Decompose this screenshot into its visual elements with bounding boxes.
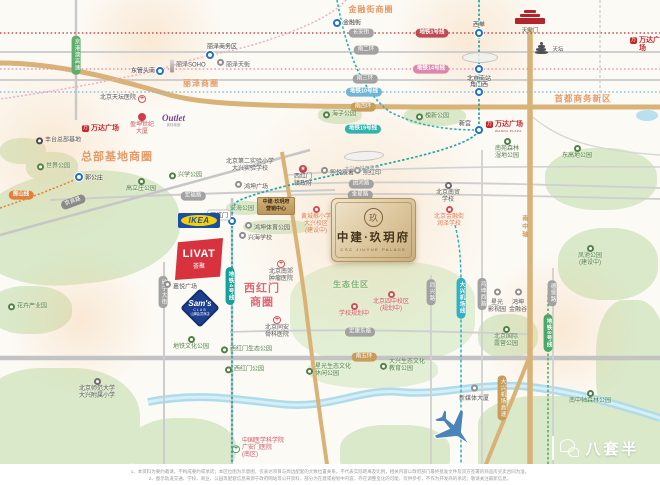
poi-icon bbox=[470, 385, 477, 392]
metro-line-badge: 地铁4号线 bbox=[226, 267, 235, 305]
wanda-entext: WANDA PLAZA bbox=[495, 129, 523, 133]
map-canvas: 天安门 天坛 金融街商圈丽泽商圈总部基地商圈首都商务新区西红门 商圈生态住区长安… bbox=[0, 0, 660, 485]
poi-label: 东高地公园 bbox=[562, 153, 592, 160]
park-icon bbox=[169, 173, 176, 180]
poi-label: 北京天坛医院 bbox=[100, 95, 136, 102]
poi-icon bbox=[321, 167, 328, 174]
poi-label: 鸿坤体育公园 bbox=[254, 225, 290, 232]
metro-station-marker bbox=[156, 67, 164, 75]
station-label: 角门西 bbox=[470, 80, 488, 89]
labels-layer: 金融街商圈丽泽商圈总部基地商圈首都商务新区西红门 商圈生态住区长安街南二环南三环… bbox=[0, 0, 660, 485]
district-label: 丽泽商圈 bbox=[183, 79, 219, 89]
wanda-icon: 万 bbox=[630, 37, 637, 44]
map-poi: 学校规划中 bbox=[339, 303, 369, 318]
park-icon bbox=[225, 367, 232, 374]
poi-label: 南中轴森林公园 bbox=[569, 398, 611, 405]
map-poi: 海子公园 bbox=[323, 111, 356, 118]
metro-line-badge: 地铁1号线 bbox=[415, 29, 448, 38]
poi-label: 地铁文化公园 bbox=[173, 344, 209, 351]
pin-icon bbox=[138, 113, 146, 121]
station-label: 西单 bbox=[473, 20, 485, 29]
metro-station-marker bbox=[475, 126, 483, 134]
road-badge: 宏康东路 bbox=[345, 328, 375, 337]
map-poi: 黄城根小学 大兴校区 (建设中) bbox=[301, 206, 331, 236]
project-seal-icon: 玖 bbox=[364, 208, 383, 227]
map-poi: 大兴大悦春风里 bbox=[344, 166, 379, 172]
metro-station-marker bbox=[75, 173, 83, 181]
road-badge: 南中轴 bbox=[518, 212, 528, 242]
metro-station-marker bbox=[475, 29, 483, 37]
livat-logo: LIVAT荟聚 bbox=[175, 238, 223, 280]
road-badge: 大兴机场高速 bbox=[498, 376, 507, 421]
watermark-text: 八套半 bbox=[586, 438, 640, 459]
road-badge: 长安街 bbox=[349, 29, 374, 38]
watermark-divider bbox=[552, 436, 554, 460]
metro-line-badge: 房山线 bbox=[9, 191, 34, 200]
wanda-text: 万达广场 bbox=[495, 121, 523, 129]
park-icon bbox=[502, 326, 509, 333]
map-poi: 南中轴森林公园 bbox=[569, 390, 611, 405]
road-badge: 团河路 bbox=[349, 180, 374, 189]
poi-label: 兴学公园 bbox=[178, 172, 202, 179]
poi-label: 星光生态文化 休闲公园 bbox=[315, 364, 351, 378]
map-poi: 兴海学校 bbox=[239, 235, 272, 242]
map-poi: 新媒体大厦 bbox=[459, 388, 489, 403]
road-badge: 南五环 bbox=[352, 353, 377, 362]
map-poi: 西红门 镇政府 bbox=[294, 165, 312, 188]
poi-label: 北京第二实验小学 大兴实验学校 bbox=[226, 159, 274, 173]
map-poi: 南苑森林 湿地公园 bbox=[495, 138, 519, 160]
map-poi: 大兴生态文化 教育公园 bbox=[380, 359, 425, 373]
poi-label: 兴海公园 bbox=[230, 206, 254, 213]
poi-label: 鸿坤广场 bbox=[244, 184, 268, 191]
livat-subtext: 荟聚 bbox=[193, 261, 205, 270]
sales-center-badge: 中建·玖玥府 营销中心 bbox=[257, 197, 295, 215]
district-label: 生态住区 bbox=[333, 280, 369, 290]
sams-subtext: 山姆会员商店 bbox=[188, 313, 211, 317]
metro-line-badge: 地铁19号线 bbox=[345, 125, 381, 134]
poi-label: 鸿坤 金融谷 bbox=[509, 300, 527, 314]
park-icon bbox=[306, 368, 313, 375]
poi-icon bbox=[235, 181, 242, 188]
station-label: 郭公庄 bbox=[85, 173, 103, 182]
road-badge: 南四环 bbox=[351, 103, 376, 112]
map-poi: 鸿坤广场 bbox=[235, 184, 268, 191]
poi-icon bbox=[164, 281, 171, 288]
metro-line-badge: 大兴机场线 bbox=[457, 278, 466, 319]
sales-center-line2: 营销中心 bbox=[258, 206, 294, 213]
poi-label: 北京金融街 润泽学校 bbox=[434, 214, 464, 228]
hospital-icon bbox=[273, 316, 281, 324]
poi-icon bbox=[217, 59, 224, 66]
hgreen-icon bbox=[232, 445, 240, 453]
station-label: 金融街 bbox=[343, 18, 361, 27]
map-poi: 凤池公园 (建设中) bbox=[578, 245, 602, 267]
metro-station-marker bbox=[206, 51, 214, 59]
project-name-en: CSC JIUYUE PALACE bbox=[341, 247, 407, 252]
metro-line-badge: 地铁8号线 bbox=[544, 314, 553, 352]
wanda-plaza-logo: 万万达广场WANDA PLAZA bbox=[486, 121, 523, 133]
poi-label: 高立庄公园 bbox=[126, 186, 156, 193]
wanda-text: 万达广场 bbox=[91, 125, 119, 133]
poi-dark-icon bbox=[36, 138, 43, 145]
poi-label: 西红门 镇政府 bbox=[294, 174, 312, 188]
metro-station-marker bbox=[333, 19, 341, 27]
map-poi: 星光生态文化 休闲公园 bbox=[306, 364, 351, 378]
map-poi: 鸿坤体育公园 bbox=[245, 225, 290, 232]
wanda-plaza-logo: 万万达广场 bbox=[630, 37, 660, 52]
planned-icon bbox=[350, 303, 357, 310]
map-poi: 丽泽天街 bbox=[217, 62, 250, 69]
poi-label: 丽泽SOHO bbox=[176, 62, 206, 69]
poi-icon bbox=[245, 222, 252, 229]
planned-icon bbox=[445, 206, 452, 213]
map-poi: 鸿坤 金融谷 bbox=[509, 292, 527, 314]
map-poi: 星光 影视园 bbox=[488, 292, 506, 314]
poi-label: 大兴生态文化 教育公园 bbox=[389, 359, 425, 373]
park-icon bbox=[187, 336, 194, 343]
metro-station-marker bbox=[475, 88, 483, 96]
road-badge: 京港澳高速 bbox=[72, 36, 81, 75]
road-badge: 德贤路 bbox=[548, 280, 557, 306]
planned-icon bbox=[312, 206, 319, 213]
district-label: 金融街商圈 bbox=[349, 5, 394, 15]
map-poi: 北京同安 骨科医院 bbox=[265, 316, 289, 339]
poi-label: 北京南郊 肿瘤医院 bbox=[269, 269, 293, 283]
metro-line-badge: 地铁14号线 bbox=[413, 65, 449, 74]
ikea-oval: IKEA bbox=[181, 215, 217, 226]
watermark: 八套半 bbox=[552, 436, 640, 460]
road-badge: 京良路 bbox=[60, 194, 86, 211]
poi-label: 花卉产业园 bbox=[17, 303, 47, 310]
map-poi: 北京国际 露营公园 bbox=[494, 326, 518, 348]
poi-label: 黄城根小学 大兴校区 (建设中) bbox=[301, 214, 331, 236]
livat-text: LIVAT bbox=[183, 248, 216, 260]
park-icon bbox=[573, 145, 580, 152]
govt-icon bbox=[299, 165, 307, 173]
map-poi: 丽泽SOHO bbox=[170, 60, 206, 73]
map-poi: 槐新公园 bbox=[416, 113, 449, 120]
school-icon bbox=[444, 182, 451, 189]
district-label: 首都商务新区 bbox=[554, 94, 611, 105]
wanda-icon: 万 bbox=[486, 121, 493, 128]
wanda-icon: 万 bbox=[82, 125, 89, 132]
poi-label: 北京四中校区 (规划中) bbox=[373, 299, 409, 313]
park-icon bbox=[586, 390, 593, 397]
park-icon bbox=[323, 112, 330, 119]
poi-label: 西红门公园 bbox=[234, 366, 264, 373]
poi-label: 北京南贸 学校 bbox=[436, 190, 460, 204]
station-label: 东管头南 bbox=[131, 66, 155, 75]
park-icon bbox=[37, 164, 44, 171]
map-poi: 花卉产业园 bbox=[8, 303, 47, 310]
map-poi: 兴学公园 bbox=[169, 172, 202, 179]
road-badge: 同兴路 bbox=[427, 279, 436, 305]
wanda-text: 万达广场 bbox=[639, 37, 660, 52]
road-badge: 宏福路 bbox=[181, 192, 206, 201]
poi-label: 海子公园 bbox=[332, 111, 356, 118]
map-poi: 西红门公园 bbox=[225, 366, 264, 373]
station-label: 新宫 bbox=[459, 119, 471, 128]
poi-label: 南苑森林 湿地公园 bbox=[495, 146, 519, 160]
park-icon bbox=[380, 363, 387, 370]
map-poi: 地铁文化公园 bbox=[173, 336, 209, 351]
ikea-text: IKEA bbox=[188, 216, 209, 225]
map-poi: 西红门生态公园 bbox=[221, 346, 272, 353]
poi-label: 北京同安 骨科医院 bbox=[265, 325, 289, 339]
poi-label: 北京国际 露营公园 bbox=[494, 334, 518, 348]
outlet-subtext: 奥特莱斯 bbox=[162, 124, 185, 128]
sales-center-line1: 中建·玖玥府 bbox=[258, 199, 294, 206]
map-poi: 东高地公园 bbox=[562, 145, 592, 160]
project-card-inner: 玖 中建·玖玥府 CSC JIUYUE PALACE bbox=[335, 202, 412, 258]
road-badge: 南三环 bbox=[353, 75, 378, 84]
hospital-icon bbox=[277, 260, 285, 268]
park-icon bbox=[503, 138, 510, 145]
station-label: 丽泽商务区 bbox=[207, 42, 237, 51]
metro-line-badge: 地铁10号线 bbox=[346, 88, 382, 97]
poi-label: 凤池公园 (建设中) bbox=[578, 253, 602, 267]
sams-club-logo: Sam'sCLUB山姆会员商店 bbox=[183, 291, 217, 325]
park-icon bbox=[586, 245, 593, 252]
map-poi: 北京天坛医院 bbox=[100, 95, 146, 103]
district-label: 总部基地商圈 bbox=[81, 151, 153, 165]
project-card: 玖 中建·玖玥府 CSC JIUYUE PALACE bbox=[331, 198, 416, 262]
disclaimer-line1: 1、本资料为要约邀请，不构成要约或承诺；本区位图为示意图，仅表达项目与周边配套的… bbox=[10, 468, 650, 475]
park-icon bbox=[8, 304, 15, 311]
park-icon bbox=[221, 347, 228, 354]
poi-label: 新媒体大厦 bbox=[459, 396, 489, 403]
disclaimer-text: 1、本资料为要约邀请，不构成要约或承诺；本区位图为示意图，仅表达项目与周边配套的… bbox=[10, 468, 650, 482]
map-poi: 中国医学科学院 广安门医院 (南区) bbox=[232, 438, 284, 460]
map-poi: 北京四中校区 (规划中) bbox=[373, 291, 409, 313]
wechat-icon bbox=[560, 439, 580, 457]
poi-label: 学校规划中 bbox=[339, 311, 369, 318]
poi-label: 丰台总部基地 bbox=[45, 137, 81, 144]
project-name: 中建·玖玥府 bbox=[337, 229, 410, 245]
tower-icon bbox=[170, 60, 174, 73]
map-poi: 丰台总部基地 bbox=[36, 137, 81, 144]
poi-icon bbox=[493, 289, 500, 296]
disclaimer-line2: 2、图示轨道交通、学校、商业、公园等配套信息来源于政府网站等公开资料，部分为在建… bbox=[10, 475, 650, 482]
map-poi: 盈坤世纪 大厦 bbox=[130, 113, 154, 136]
park-icon bbox=[137, 178, 144, 185]
map-poi: 北京南郊 肿瘤医院 bbox=[269, 260, 293, 283]
poi-label: 槐新公园 bbox=[425, 113, 449, 120]
poi-label: 兴海学校 bbox=[248, 235, 272, 242]
poi-label: 西红门生态公园 bbox=[230, 346, 272, 353]
poi-label: 星光 影视园 bbox=[488, 300, 506, 314]
wanda-plaza-logo: 万万达广场 bbox=[82, 125, 119, 133]
poi-label: 世界公园 bbox=[46, 163, 70, 170]
map-poi: 北京南贸 学校 bbox=[436, 182, 460, 204]
map-poi: 北京第二实验小学 大兴实验学校 bbox=[226, 159, 274, 173]
map-poi: 世界公园 bbox=[37, 163, 70, 170]
school-icon bbox=[93, 378, 100, 385]
park-icon bbox=[416, 114, 423, 121]
poi-label: 大兴大悦春风里 bbox=[344, 166, 379, 172]
district-label: 西红门 商圈 bbox=[244, 282, 280, 310]
map-poi: 兴海公园 bbox=[230, 206, 254, 213]
planned-icon bbox=[387, 291, 394, 298]
road-badge: 鸿坤西路 bbox=[478, 278, 487, 310]
metro-station-marker bbox=[475, 65, 483, 73]
poi-label: 丽泽天街 bbox=[226, 62, 250, 69]
poi-icon bbox=[514, 289, 521, 296]
outlet-logo: Outlet奥特莱斯 bbox=[162, 114, 185, 128]
poi-label: 盈坤世纪 大厦 bbox=[130, 122, 154, 136]
poi-label: 北京师范大学 大兴附属小学 bbox=[79, 386, 115, 400]
ikea-logo: IKEA bbox=[178, 213, 220, 228]
map-poi: 北京师范大学 大兴附属小学 bbox=[79, 378, 115, 400]
map-poi: 高立庄公园 bbox=[126, 178, 156, 193]
map-poi: 北京金融街 润泽学校 bbox=[434, 206, 464, 228]
poi-label: 中国医学科学院 广安门医院 (南区) bbox=[242, 438, 284, 460]
hospital-icon bbox=[138, 95, 146, 103]
road-badge: 南二环 bbox=[354, 46, 379, 55]
poi-icon bbox=[239, 232, 246, 239]
